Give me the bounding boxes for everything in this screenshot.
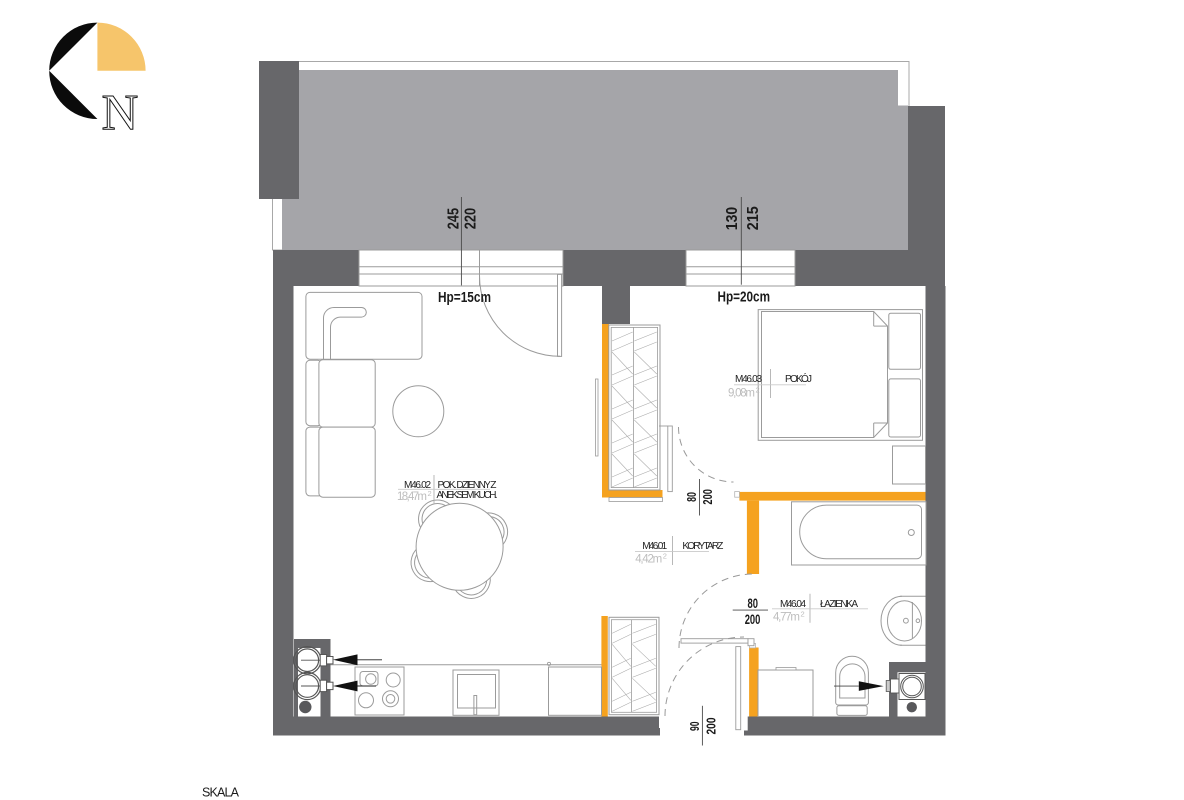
svg-text:9,08m: 9,08m [728,388,755,400]
svg-text:90: 90 [687,722,702,732]
svg-text:130: 130 [724,207,741,230]
svg-text:245: 245 [445,208,462,229]
svg-text:ANEKSEM KUCH.: ANEKSEM KUCH. [437,490,498,501]
svg-text:KORYTARZ: KORYTARZ [682,541,723,552]
svg-text:M46.01: M46.01 [642,541,667,552]
svg-text:80: 80 [748,595,759,611]
svg-text:SKALA: SKALA [202,786,240,800]
svg-text:M46.03: M46.03 [735,374,762,385]
svg-text:Hp=15cm: Hp=15cm [438,289,491,306]
svg-text:POKÓJ: POKÓJ [785,372,812,385]
svg-text:215: 215 [745,206,762,230]
svg-text:18,47m: 18,47m [397,491,427,503]
svg-text:2: 2 [663,552,667,561]
svg-text:2: 2 [428,489,432,498]
svg-text:220: 220 [463,208,480,229]
svg-text:200: 200 [700,489,715,505]
svg-text:4,77m: 4,77m [773,612,800,624]
svg-text:N: N [102,86,139,142]
svg-text:200: 200 [704,718,719,735]
svg-text:4,42m: 4,42m [635,554,662,566]
svg-text:2: 2 [801,610,805,619]
svg-text:ŁAZIENKA: ŁAZIENKA [820,599,858,610]
svg-text:80: 80 [684,492,699,502]
svg-text:2: 2 [756,386,760,395]
svg-text:Hp=20cm: Hp=20cm [718,289,771,306]
svg-text:200: 200 [745,611,761,627]
svg-text:M46.04: M46.04 [780,599,806,610]
